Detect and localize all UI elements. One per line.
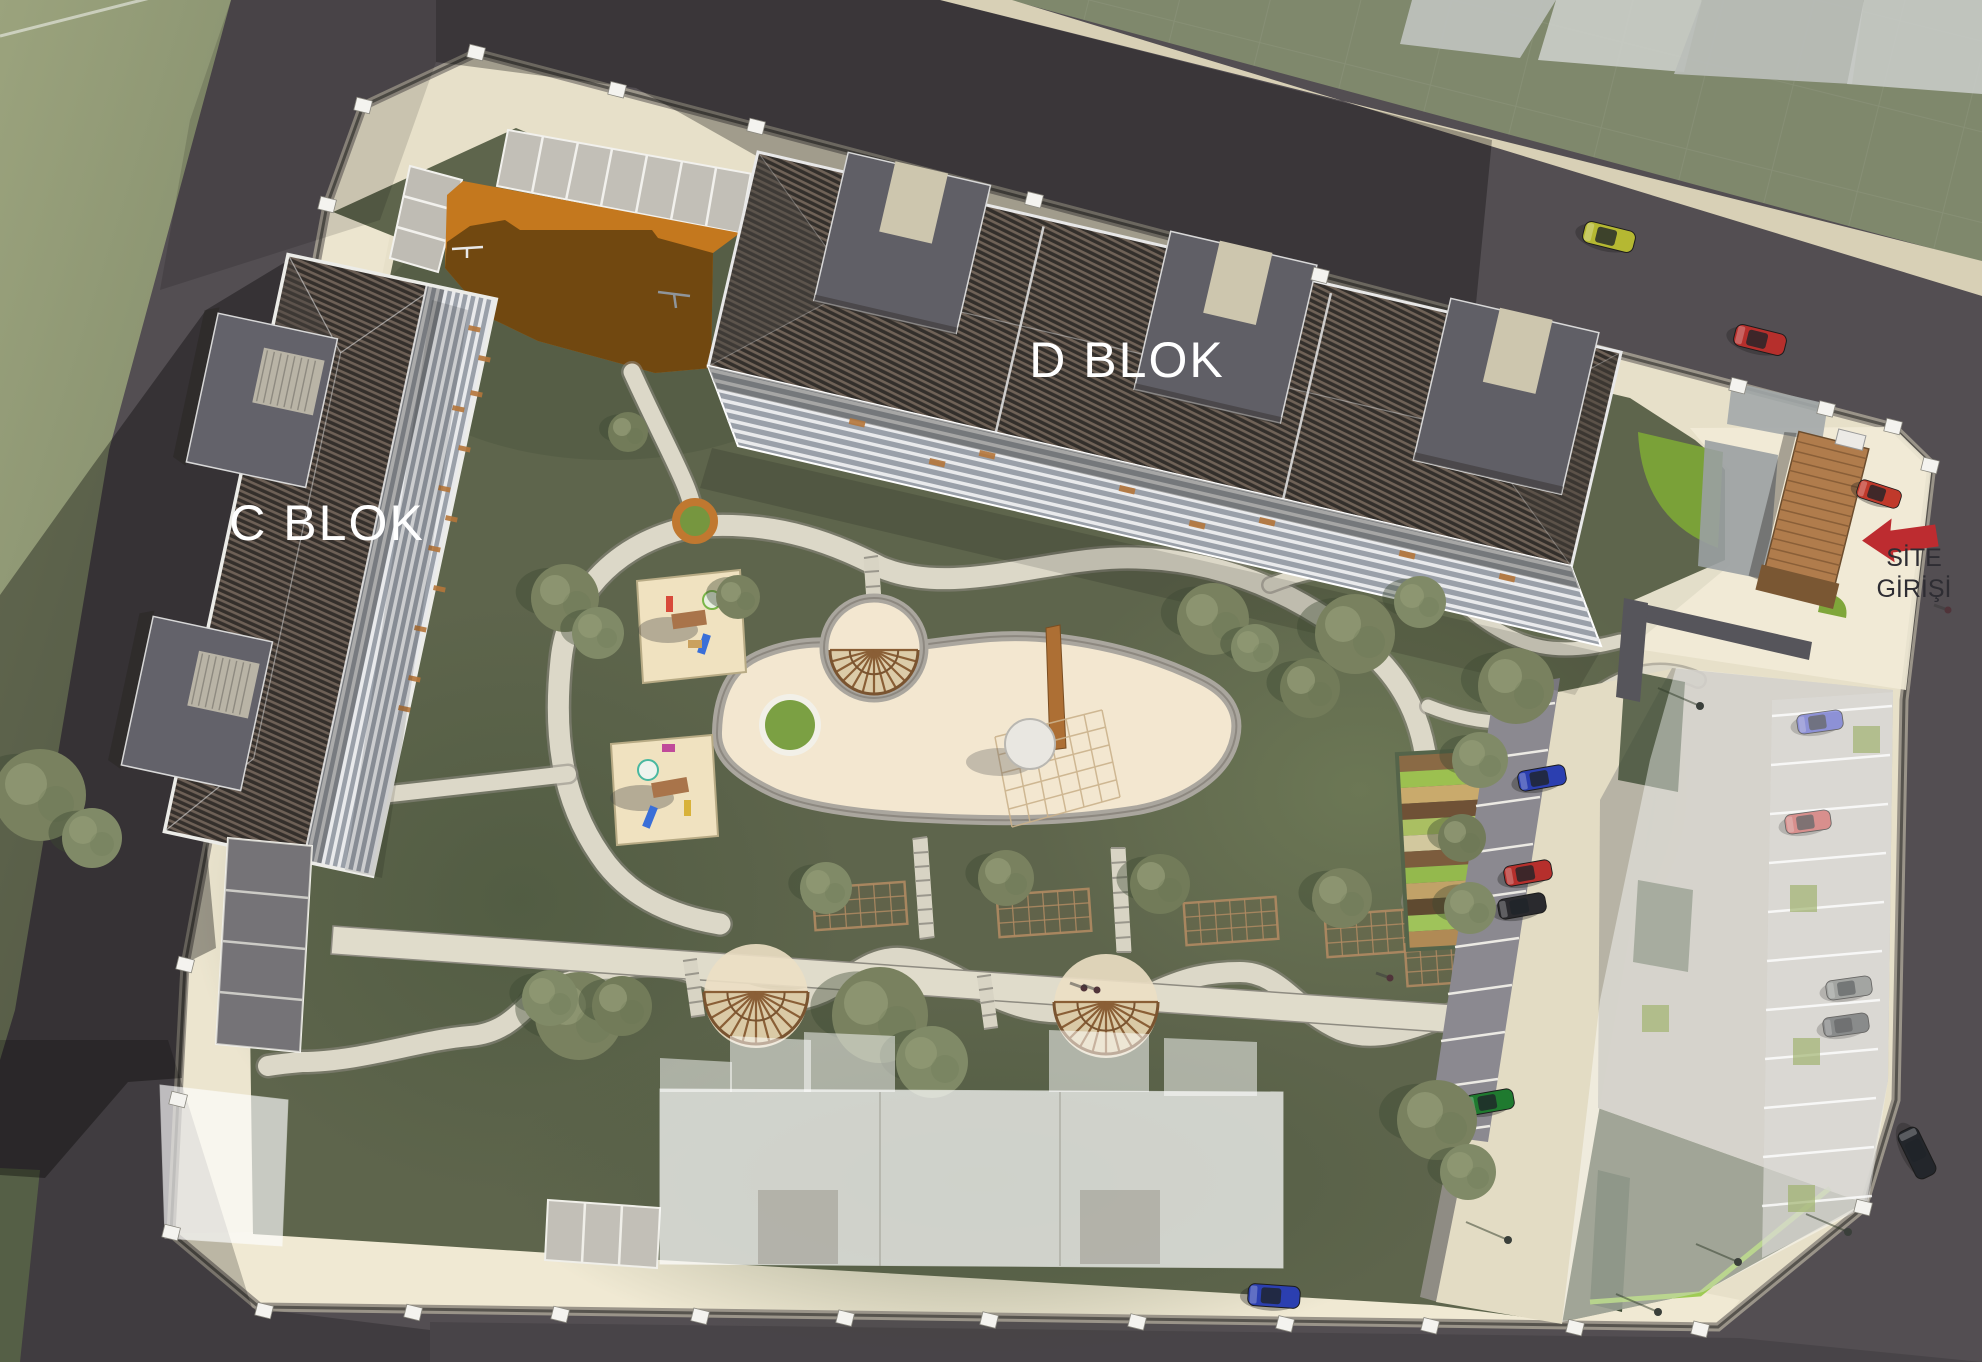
svg-text:SİTE: SİTE xyxy=(1886,543,1942,572)
svg-text:C BLOK: C BLOK xyxy=(229,495,424,551)
svg-text:D BLOK: D BLOK xyxy=(1029,332,1224,388)
svg-text:GİRİŞİ: GİRİŞİ xyxy=(1876,574,1951,603)
